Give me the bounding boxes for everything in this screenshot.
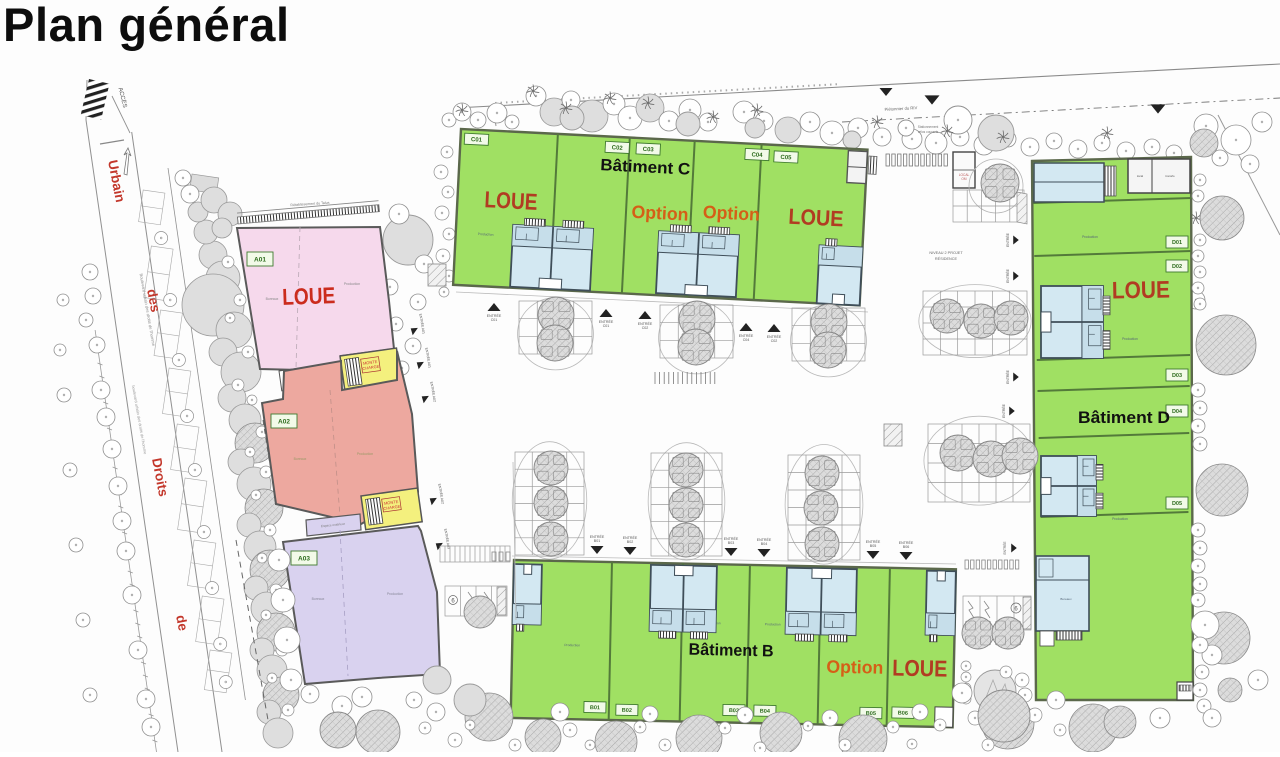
svg-text:ENTRÉE: ENTRÉE: [1005, 369, 1010, 383]
svg-text:Option: Option: [702, 202, 760, 225]
svg-text:Bureaux: Bureaux: [312, 597, 325, 601]
svg-text:Bureaux: Bureaux: [294, 457, 307, 461]
svg-text:Production: Production: [357, 452, 373, 456]
svg-text:C03: C03: [643, 147, 655, 154]
svg-text:D03: D03: [1172, 373, 1182, 379]
svg-text:transfo: transfo: [1165, 174, 1175, 178]
svg-text:Bureaux: Bureaux: [266, 297, 279, 301]
svg-text:ENTRÉE: ENTRÉE: [1002, 542, 1007, 555]
svg-text:B01: B01: [594, 539, 600, 543]
svg-text:C01: C01: [491, 318, 498, 322]
svg-text:Bâtiment B: Bâtiment B: [688, 641, 773, 661]
svg-text:D05: D05: [1172, 501, 1182, 507]
svg-text:Production: Production: [1122, 337, 1138, 341]
svg-text:NIVEAU 2 PROJET: NIVEAU 2 PROJET: [929, 251, 963, 255]
svg-text:B06: B06: [898, 711, 908, 717]
svg-text:B04: B04: [760, 709, 771, 715]
svg-text:C01: C01: [603, 324, 610, 328]
svg-text:Option: Option: [826, 657, 883, 678]
svg-text:C02: C02: [612, 145, 624, 152]
svg-text:LOUE: LOUE: [892, 654, 948, 681]
svg-text:B02: B02: [622, 708, 632, 714]
svg-text:ENTRÉE: ENTRÉE: [1005, 268, 1010, 282]
svg-text:Bâtiment D: Bâtiment D: [1078, 409, 1170, 427]
svg-text:D02: D02: [1172, 264, 1182, 270]
svg-text:A01: A01: [254, 256, 266, 263]
svg-text:Stationnement: Stationnement: [918, 125, 939, 129]
svg-text:B01: B01: [590, 705, 600, 711]
svg-text:LOUE: LOUE: [484, 186, 538, 215]
svg-text:B02: B02: [627, 540, 633, 544]
svg-text:local: local: [1137, 174, 1144, 178]
svg-text:ENTRÉE: ENTRÉE: [1005, 232, 1010, 246]
svg-text:Production: Production: [478, 232, 494, 237]
svg-text:Production: Production: [1112, 517, 1128, 521]
svg-text:Bureaux: Bureaux: [1060, 597, 1072, 601]
svg-text:ENTRÉE: ENTRÉE: [1001, 403, 1006, 417]
svg-text:Option: Option: [631, 202, 689, 225]
svg-text:Production: Production: [1082, 235, 1098, 239]
svg-text:LOUE: LOUE: [788, 204, 844, 232]
svg-text:C04: C04: [751, 152, 763, 159]
svg-text:A03: A03: [298, 555, 310, 562]
svg-text:C01: C01: [471, 137, 483, 144]
svg-text:LOUE: LOUE: [282, 282, 336, 310]
svg-text:Production: Production: [344, 282, 360, 286]
svg-text:Plan général: Plan général: [3, 0, 290, 51]
svg-text:LOUE: LOUE: [1112, 276, 1170, 304]
svg-text:C02: C02: [771, 339, 778, 343]
svg-text:vélos couverts: vélos couverts: [918, 130, 939, 134]
svg-text:A02: A02: [278, 418, 290, 425]
svg-text:Production: Production: [387, 592, 403, 596]
svg-text:B04: B04: [761, 542, 767, 546]
svg-text:C04: C04: [743, 338, 750, 342]
svg-text:C02: C02: [642, 326, 649, 330]
svg-text:B03: B03: [728, 541, 734, 545]
svg-text:OM: OM: [961, 177, 966, 181]
svg-text:D04: D04: [1172, 409, 1183, 415]
svg-text:D01: D01: [1172, 240, 1182, 246]
svg-text:Production: Production: [765, 622, 781, 626]
svg-text:C05: C05: [780, 155, 792, 162]
svg-text:B05: B05: [870, 544, 876, 548]
svg-text:B06: B06: [903, 545, 909, 549]
svg-text:Production: Production: [564, 643, 580, 647]
svg-text:RÉSIDENCE: RÉSIDENCE: [935, 256, 958, 261]
